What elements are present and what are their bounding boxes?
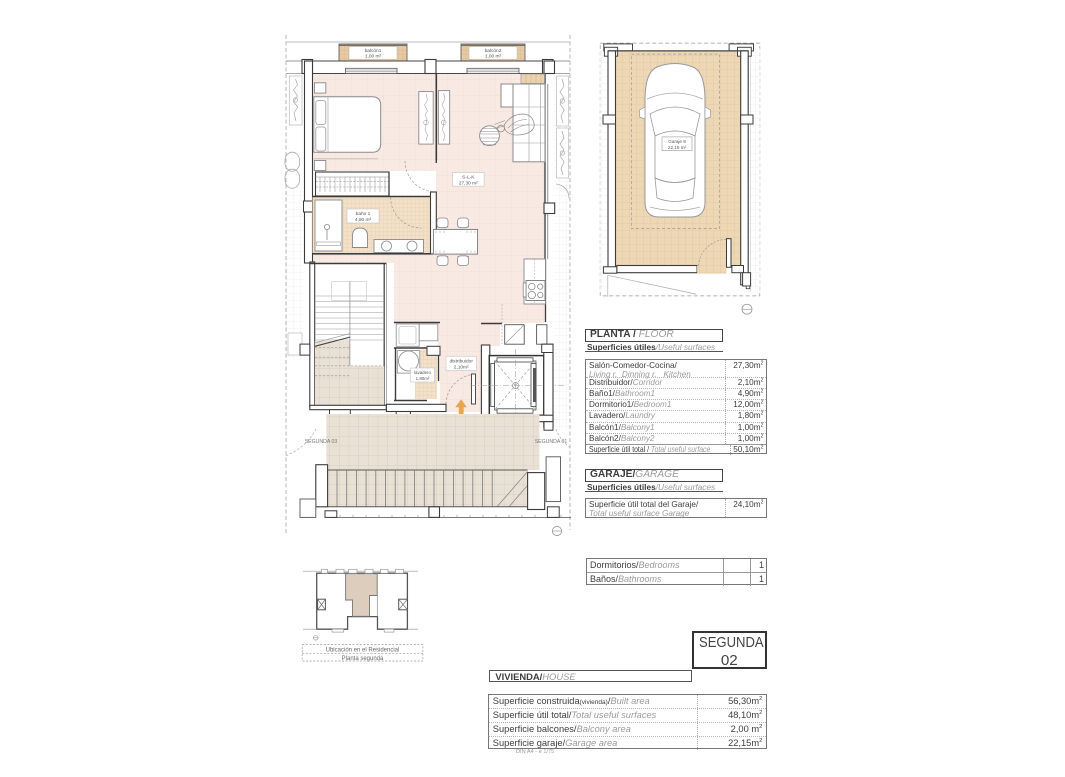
svg-text:balcón1: balcón1 [365,48,382,54]
svg-text:lavadero: lavadero [414,370,431,375]
svg-text:22,15 m²: 22,15 m² [668,145,687,150]
svg-text:S-L-K: S-L-K [462,174,475,180]
svg-text:1,00 m²: 1,00 m² [485,54,502,60]
svg-text:Ubicación en el Residencial: Ubicación en el Residencial [326,647,400,653]
svg-text:27,30 m²: 27,30 m² [459,180,478,186]
svg-text:baño 1: baño 1 [356,211,371,217]
svg-text:distribuidor: distribuidor [449,358,473,364]
svg-text:2,10m²: 2,10m² [454,364,469,370]
svg-text:SEGUNDA 01: SEGUNDA 01 [535,439,568,445]
svg-text:SEGUNDA 03: SEGUNDA 03 [305,439,338,445]
svg-text:Garaje 8: Garaje 8 [668,139,686,144]
svg-text:balcón2: balcón2 [485,48,502,54]
svg-text:Planta segunda: Planta segunda [342,656,384,662]
svg-text:4,90 m²: 4,90 m² [355,217,372,223]
svg-text:1,00 m²: 1,00 m² [365,54,382,60]
svg-text:1,80m²: 1,80m² [416,376,430,381]
